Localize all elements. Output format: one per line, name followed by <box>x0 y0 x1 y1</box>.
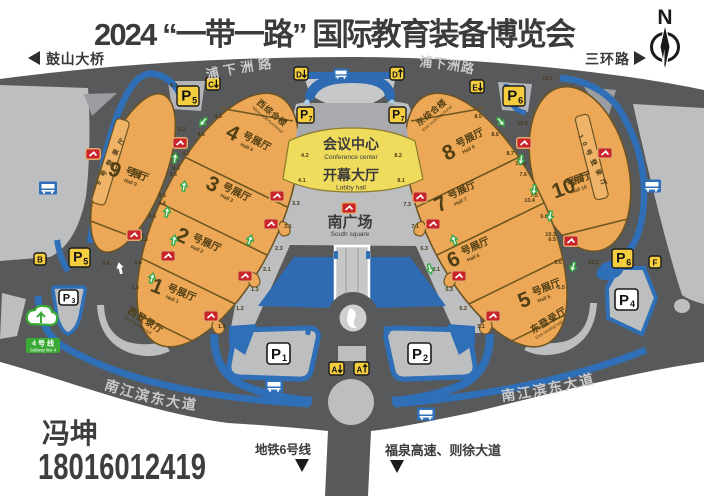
svg-text:7: 7 <box>401 116 405 123</box>
svg-text:3: 3 <box>71 298 75 305</box>
svg-text:Subway line 4: Subway line 4 <box>30 348 57 353</box>
svg-text:Lobby hall: Lobby hall <box>336 185 366 192</box>
svg-text:5.2: 5.2 <box>459 306 467 312</box>
svg-text:4.1: 4.1 <box>298 178 306 184</box>
svg-text:3.6: 3.6 <box>169 172 177 178</box>
svg-text:7.1: 7.1 <box>411 224 419 230</box>
svg-text:6: 6 <box>518 96 523 106</box>
svg-text:5: 5 <box>192 96 197 106</box>
svg-text:10.7: 10.7 <box>542 76 553 82</box>
svg-text:4.7: 4.7 <box>182 151 190 157</box>
svg-text:A: A <box>357 365 363 374</box>
svg-text:1: 1 <box>282 353 287 363</box>
svg-text:10.2: 10.2 <box>588 260 599 266</box>
svg-text:2.3: 2.3 <box>275 246 283 252</box>
svg-text:8.1: 8.1 <box>397 178 405 184</box>
svg-text:18016012419: 18016012419 <box>38 446 206 487</box>
svg-text:P: P <box>271 346 281 363</box>
svg-text:开幕大厅: 开幕大厅 <box>323 167 379 183</box>
svg-text:1.5: 1.5 <box>131 285 139 291</box>
svg-text:5.1: 5.1 <box>477 324 485 330</box>
svg-text:10.4: 10.4 <box>524 198 536 204</box>
svg-text:P: P <box>619 292 629 309</box>
svg-text:F: F <box>653 258 658 267</box>
svg-text:9.4: 9.4 <box>158 201 167 207</box>
svg-text:9.3: 9.3 <box>172 166 180 172</box>
svg-text:2.1: 2.1 <box>263 267 271 273</box>
svg-text:7: 7 <box>309 116 313 123</box>
svg-text:8.7: 8.7 <box>506 151 514 157</box>
svg-text:P: P <box>392 108 400 122</box>
svg-text:4.2: 4.2 <box>301 153 309 159</box>
svg-text:5.5: 5.5 <box>557 285 565 291</box>
svg-text:8.5: 8.5 <box>474 114 482 120</box>
svg-text:4.5: 4.5 <box>214 114 222 120</box>
svg-text:P: P <box>300 108 308 122</box>
svg-text:8.2: 8.2 <box>394 153 402 159</box>
svg-text:会议中心: 会议中心 <box>323 136 379 152</box>
svg-text:2: 2 <box>423 353 428 363</box>
svg-text:3.3: 3.3 <box>292 201 300 207</box>
svg-text:5.6: 5.6 <box>554 260 562 266</box>
svg-text:5: 5 <box>83 257 88 267</box>
svg-text:P: P <box>412 346 422 363</box>
svg-text:3.1: 3.1 <box>284 224 292 230</box>
svg-text:10.3: 10.3 <box>545 232 556 238</box>
svg-text:P: P <box>507 87 517 104</box>
svg-text:B: B <box>37 255 43 264</box>
svg-text:P: P <box>181 87 191 104</box>
svg-text:1.3: 1.3 <box>251 287 259 293</box>
svg-text:冯坤: 冯坤 <box>42 418 98 449</box>
svg-text:6: 6 <box>626 258 631 268</box>
svg-text:4.6: 4.6 <box>197 132 205 138</box>
svg-text:福泉高速、则徐大道: 福泉高速、则徐大道 <box>384 443 501 458</box>
svg-text:9.6: 9.6 <box>102 261 110 267</box>
svg-text:4号线: 4号线 <box>32 339 54 348</box>
svg-text:地铁6号线: 地铁6号线 <box>255 442 311 457</box>
svg-text:P: P <box>63 292 70 304</box>
svg-text:10.6: 10.6 <box>517 121 528 127</box>
svg-text:南广场: 南广场 <box>328 213 373 231</box>
svg-text:2024 “一带一路” 国际教育装备博览会: 2024 “一带一路” 国际教育装备博览会 <box>94 17 576 52</box>
svg-text:4: 4 <box>630 299 635 309</box>
svg-text:E: E <box>472 83 478 92</box>
svg-text:6.3: 6.3 <box>420 246 428 252</box>
svg-text:7.3: 7.3 <box>403 202 411 208</box>
svg-text:5.3: 5.3 <box>445 287 453 293</box>
svg-text:2.6: 2.6 <box>148 214 156 220</box>
svg-text:鼓山大桥: 鼓山大桥 <box>46 51 105 67</box>
svg-text:P: P <box>616 250 625 266</box>
svg-text:South square: South square <box>331 231 370 238</box>
svg-text:1.2: 1.2 <box>236 306 244 312</box>
svg-text:D: D <box>296 70 302 79</box>
svg-text:1.1: 1.1 <box>218 324 226 330</box>
svg-text:D: D <box>392 70 398 79</box>
svg-text:A: A <box>332 365 338 374</box>
svg-text:N: N <box>657 6 672 29</box>
svg-text:3.5: 3.5 <box>158 193 166 199</box>
svg-text:P: P <box>73 249 82 265</box>
svg-text:9.2: 9.2 <box>178 127 186 133</box>
svg-text:三环路: 三环路 <box>585 51 630 67</box>
svg-text:1.6: 1.6 <box>134 260 142 266</box>
svg-text:8.6: 8.6 <box>491 132 499 138</box>
svg-text:Conference center: Conference center <box>324 154 378 161</box>
svg-text:7.6: 7.6 <box>519 172 527 178</box>
